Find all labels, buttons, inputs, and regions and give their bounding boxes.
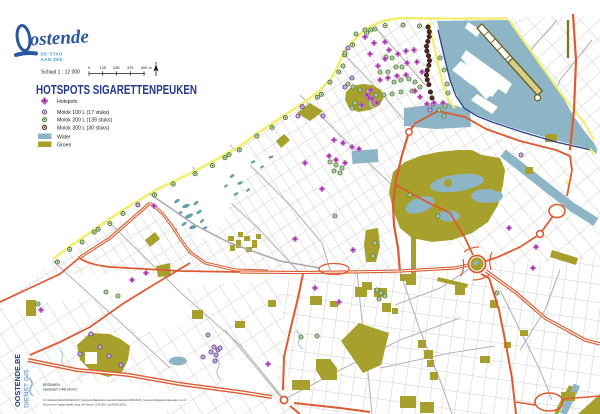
svg-text:G:\dossiers\2021\2021013_hotsp: G:\dossiers\2021\2021013_hotspotsSigaret… (43, 398, 186, 402)
svg-text:ostende: ostende (29, 26, 90, 50)
svg-text:Molok 100 L (17 stuks): Molok 100 L (17 stuks) (57, 110, 110, 116)
svg-text:DIENST GIS: DIENST GIS (24, 369, 31, 408)
svg-text:Hotspots: Hotspots (57, 99, 78, 105)
svg-text:Molok 200 L (139 stuks): Molok 200 L (139 stuks) (57, 118, 112, 124)
svg-text:Groen: Groen (57, 143, 72, 149)
svg-text:Water: Water (57, 135, 71, 141)
svg-text:AAN ZEE: AAN ZEE (41, 57, 64, 62)
svg-text:m: m (149, 66, 152, 70)
svg-text:Molok 300 L (30 stuks): Molok 300 L (30 stuks) (57, 125, 110, 131)
svg-text:375: 375 (127, 66, 133, 70)
svg-text:DE STAD: DE STAD (41, 52, 64, 57)
svg-text:0: 0 (88, 66, 90, 70)
svg-text:Schaal 1 : 12 000: Schaal 1 : 12 000 (41, 70, 80, 76)
svg-text:N: N (155, 62, 158, 66)
svg-text:BRONNEN: BRONNEN (43, 383, 61, 387)
svg-text:Document opgemaakt door de die: Document opgemaakt door de dienst GIS-DI… (43, 403, 127, 407)
svg-text:HOTSPOTS SIGARETTENPEUKEN: HOTSPOTS SIGARETTENPEUKEN (36, 82, 197, 97)
svg-text:basiskaart: GRB (AGIV): basiskaart: GRB (AGIV) (43, 388, 77, 392)
svg-text:250: 250 (113, 66, 119, 70)
svg-text:125: 125 (100, 66, 106, 70)
svg-text:500: 500 (141, 66, 147, 70)
svg-text:OOSTENDE.BE: OOSTENDE.BE (13, 354, 22, 407)
